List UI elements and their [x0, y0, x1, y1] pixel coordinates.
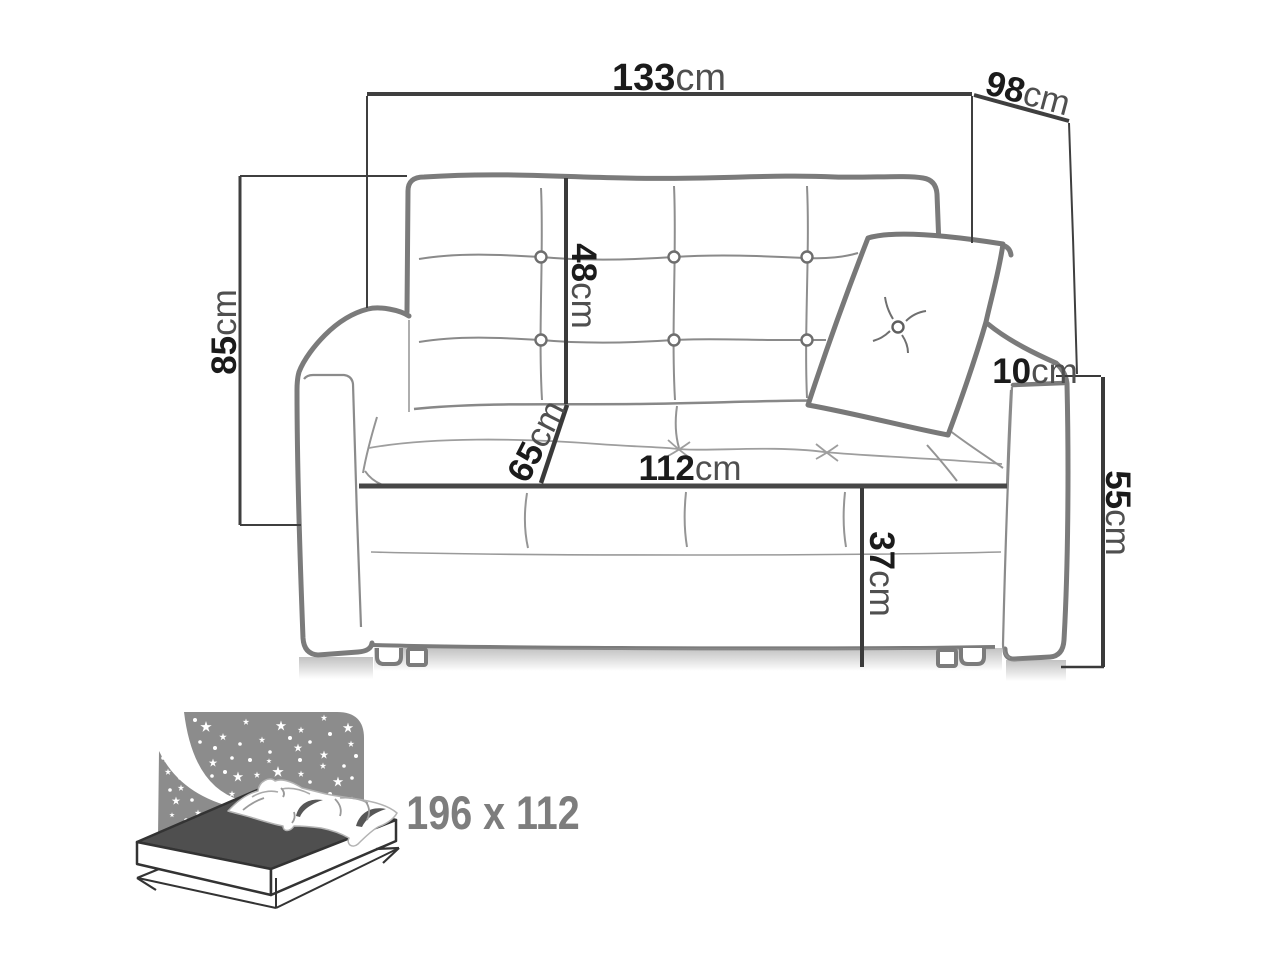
svg-text:48cm: 48cm — [564, 243, 603, 329]
svg-text:98cm: 98cm — [981, 64, 1074, 124]
svg-text:112cm: 112cm — [638, 449, 741, 488]
svg-text:133cm: 133cm — [612, 57, 726, 99]
svg-text:196 x 112: 196 x 112 — [406, 788, 579, 840]
svg-text:55cm: 55cm — [1098, 470, 1137, 556]
svg-text:10cm: 10cm — [992, 352, 1078, 391]
svg-text:85cm: 85cm — [205, 289, 244, 375]
svg-text:37cm: 37cm — [862, 531, 901, 617]
